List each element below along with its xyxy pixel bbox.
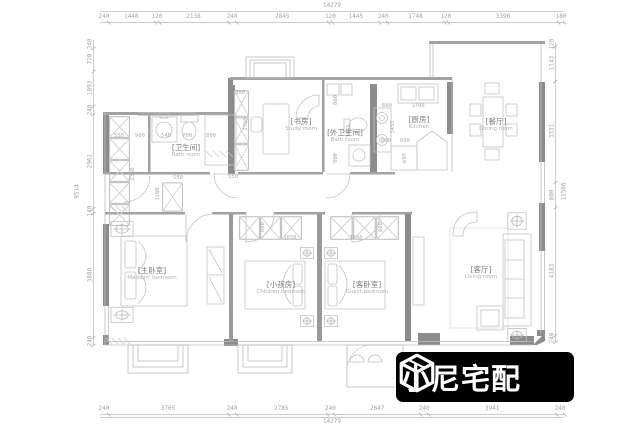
dim-segment: 240 <box>556 406 564 415</box>
dim-label: 300 <box>235 90 245 96</box>
room-name-cn: [卫生间] <box>172 143 201 152</box>
dim-segment: 240 <box>85 40 94 48</box>
dim-segment: 1143 <box>547 46 556 81</box>
room-name-cn: [厨房] <box>409 115 430 124</box>
dim-line-bottom <box>100 417 564 418</box>
dim-label: 600 <box>400 138 410 144</box>
room-name-en: Living room <box>465 274 497 281</box>
dim-segment: 240 <box>100 406 108 415</box>
dim-segment: 800 <box>547 182 556 206</box>
room-name-cn: [书房] <box>285 117 317 126</box>
dim-segment: 1093 <box>85 71 94 106</box>
dim-label: 695 <box>402 153 408 163</box>
dim-label: 600 <box>382 103 392 109</box>
dim-label: 700 <box>182 133 192 139</box>
dim-segment: 240 <box>228 14 236 23</box>
walls-layer <box>103 41 545 346</box>
dim-label: 600 <box>260 222 266 232</box>
room-name-en: Study room <box>285 126 317 133</box>
dim-label: 2760 <box>243 117 249 130</box>
room-label-kitchen: [厨房] Kitchen <box>409 115 430 131</box>
room-name-en: Bath room <box>172 152 201 159</box>
room-name-en: Guest bedroom <box>346 289 389 296</box>
dim-label: 1650 <box>283 235 296 241</box>
dim-label: 800 <box>206 133 216 139</box>
dim-label: 860 <box>333 95 339 105</box>
dim-segment: 240 <box>420 406 428 415</box>
dimension-chain-left: 240720109324029611403880240 <box>85 40 94 345</box>
dim-segment: 2785 <box>236 406 327 415</box>
dim-segment: 3880 <box>85 213 94 337</box>
dim-segment: 2961 <box>85 114 94 209</box>
room-label-living-room: [客厅] Living room <box>465 265 497 281</box>
dim-label: 1180 <box>155 187 161 200</box>
dim-segment: 240 <box>85 337 94 345</box>
dim-label: 900 <box>135 133 145 139</box>
dimension-chain-right: 120114333318004183240 <box>547 42 556 342</box>
room-name-en: Masters' bedroom <box>127 275 177 282</box>
room-label-bathroom2: [外卫生间] Bath room <box>327 128 363 144</box>
dim-segment: 240 <box>85 106 94 114</box>
dim-segment: 1445 <box>332 14 379 23</box>
dim-segment: 240 <box>547 335 556 342</box>
dim-label: 800 <box>333 153 339 163</box>
dim-total-top: 14279 <box>100 2 564 9</box>
dim-label: 550 <box>114 133 124 139</box>
dim-label: 600 <box>378 222 384 232</box>
dimension-chain-bottom: 2403705240278524026472403941240 <box>100 406 564 415</box>
dim-label: 550 <box>228 174 238 180</box>
dim-segment: 3331 <box>547 81 556 183</box>
dim-label: 540 <box>161 133 171 139</box>
room-label-guest-bedroom: [客卧室] Guest bedroom <box>346 280 389 296</box>
room-name-cn: [客厅] <box>465 265 497 274</box>
windows-layer <box>105 44 545 387</box>
room-label-master-bedroom: [主卧室] Masters' bedroom <box>127 266 177 282</box>
room-name-cn: [外卫生间] <box>327 128 363 137</box>
dim-total-bottom: 14279 <box>100 418 564 425</box>
dim-label: 600 <box>381 138 391 144</box>
room-name-en: Dining room <box>479 126 513 133</box>
dim-label: 550 <box>173 175 183 181</box>
room-name-en: Kitchen <box>409 124 430 131</box>
dim-line-top <box>100 11 564 12</box>
room-label-study: [书房] Study room <box>285 117 317 133</box>
room-label-bathroom: [卫生间] Bath room <box>172 143 201 159</box>
brand-logo: 小尼宅配 <box>396 352 574 402</box>
room-name-en: Children bedroom <box>256 289 305 296</box>
room-name-cn: [客卧室] <box>346 280 389 289</box>
dim-segment: 3705 <box>108 406 228 415</box>
room-name-en: Bath room <box>327 137 363 144</box>
dim-segment: 1448 <box>108 14 155 23</box>
dim-segment: 180 <box>558 14 564 23</box>
dim-label: 1700 <box>411 103 424 109</box>
room-name-cn: [小孩房] <box>256 280 305 289</box>
room-label-dining: [餐厅] Dining room <box>479 117 513 133</box>
dim-label: 2360 <box>130 167 136 180</box>
dim-segment: 240 <box>327 406 335 415</box>
dim-segment: 3396 <box>448 14 558 23</box>
room-name-cn: [餐厅] <box>479 117 513 126</box>
room-name-cn: [主卧室] <box>127 266 177 275</box>
dim-segment: 4183 <box>547 207 556 335</box>
dim-segment: 720 <box>85 48 94 71</box>
cube-logo-icon <box>396 352 438 394</box>
dim-total-right: 11566 <box>561 174 568 210</box>
dim-label: 1455 <box>390 120 396 133</box>
dim-segment: 2138 <box>159 14 228 23</box>
dimension-chain-top: 2401448120213824028451201445240174812033… <box>100 14 564 23</box>
dim-segment: 240 <box>379 14 387 23</box>
dim-segment: 2845 <box>236 14 328 23</box>
dim-segment: 2647 <box>334 406 420 415</box>
dim-label: 1650 <box>349 235 362 241</box>
dim-segment: 240 <box>100 14 108 23</box>
doors-layer <box>124 131 447 370</box>
dim-total-left: 9514 <box>74 177 81 207</box>
dim-segment: 1748 <box>387 14 444 23</box>
room-label-children-bedroom: [小孩房] Children bedroom <box>256 280 305 296</box>
dim-segment: 240 <box>228 406 236 415</box>
floor-plan-page: 14279 2401448120213824028451201445240174… <box>0 0 640 447</box>
dim-segment: 3941 <box>428 406 556 415</box>
